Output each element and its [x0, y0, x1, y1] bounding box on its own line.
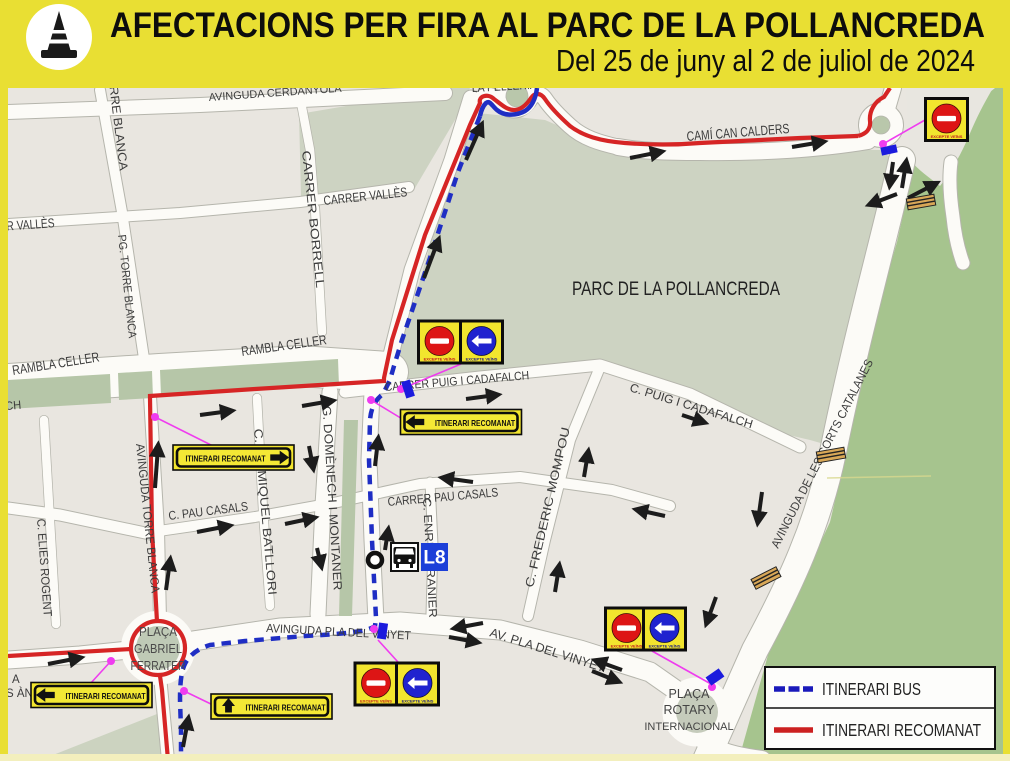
svg-text:ITINERARI RECOMANAT: ITINERARI RECOMANAT	[435, 418, 516, 428]
svg-text:ITINERARI RECOMANAT: ITINERARI RECOMANAT	[66, 691, 147, 701]
svg-text:GABRIEL: GABRIEL	[134, 642, 182, 656]
svg-text:PLAÇA: PLAÇA	[669, 687, 711, 701]
svg-text:A: A	[12, 674, 20, 686]
svg-text:ITINERARI RECOMANAT: ITINERARI RECOMANAT	[246, 703, 327, 713]
svg-text:ITINERARI RECOMANAT: ITINERARI RECOMANAT	[822, 720, 981, 740]
svg-text:FERRATER: FERRATER	[131, 659, 186, 673]
svg-text:L8: L8	[423, 548, 445, 569]
svg-text:AFECTACIONS PER FIRA AL PARC D: AFECTACIONS PER FIRA AL PARC DE LA POLLA…	[110, 6, 985, 45]
svg-text:INTERNACIONAL: INTERNACIONAL	[644, 721, 733, 733]
svg-text:PARC DE LA POLLANCREDA: PARC DE LA POLLANCREDA	[572, 278, 780, 300]
svg-text:S ÀN: S ÀN	[6, 687, 33, 700]
svg-text:ITINERARI BUS: ITINERARI BUS	[822, 679, 921, 699]
svg-text:ITINERARI RECOMANAT: ITINERARI RECOMANAT	[186, 454, 267, 464]
svg-text:ROTARY: ROTARY	[664, 703, 716, 717]
svg-text:Del 25 de juny al 2 de juliol: Del 25 de juny al 2 de juliol de 2024	[556, 43, 975, 78]
svg-text:PLAÇA: PLAÇA	[139, 625, 178, 639]
